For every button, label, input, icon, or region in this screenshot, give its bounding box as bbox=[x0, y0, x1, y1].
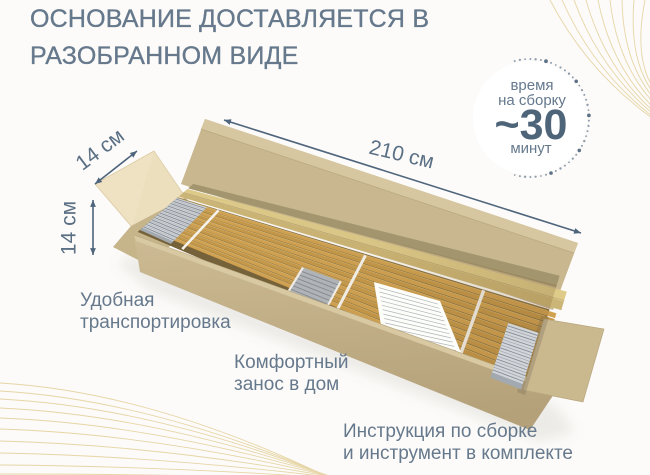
svg-text:минут: минут bbox=[510, 140, 551, 157]
svg-text:14 см: 14 см bbox=[58, 201, 81, 255]
svg-text:14 см: 14 см bbox=[72, 124, 129, 175]
